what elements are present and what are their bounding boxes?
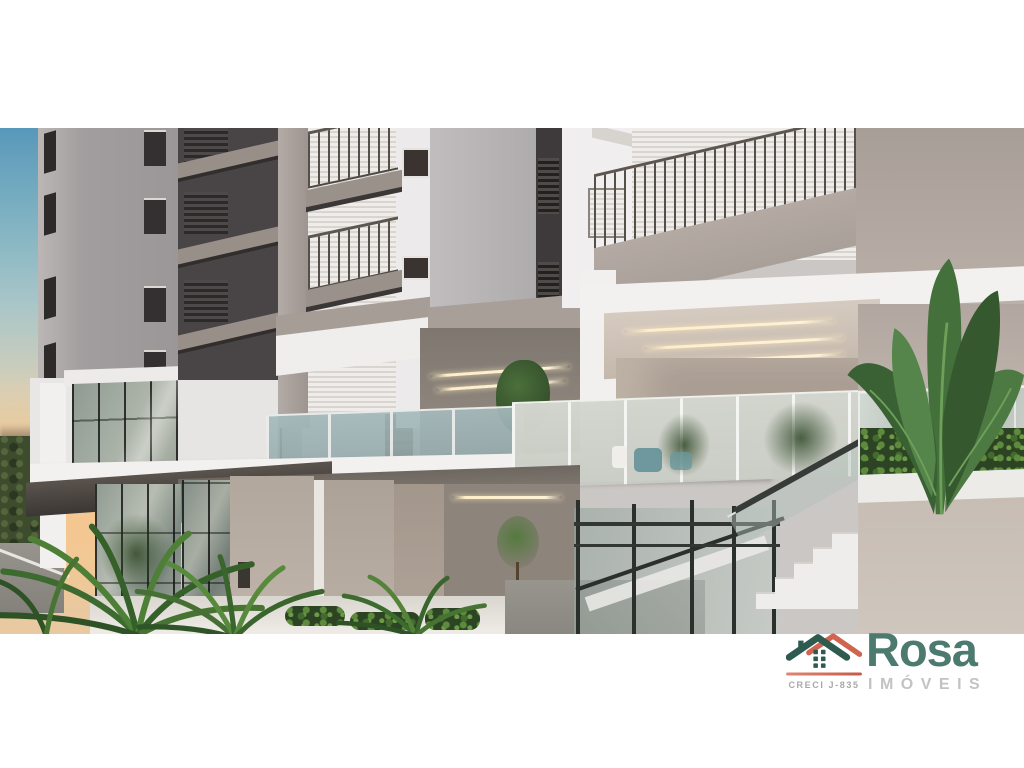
house-logo-icon bbox=[786, 630, 862, 677]
tree-canopy bbox=[497, 516, 539, 568]
louver-window bbox=[538, 158, 559, 214]
led-strip bbox=[644, 337, 844, 350]
terrace-chair bbox=[634, 448, 662, 472]
stair-post bbox=[690, 500, 694, 634]
led-strip bbox=[624, 319, 834, 333]
window-slot bbox=[44, 130, 56, 173]
stair-rail bbox=[574, 544, 780, 547]
entry-ceiling-light bbox=[452, 496, 562, 499]
window-slot bbox=[144, 130, 166, 166]
facade-gray-pier bbox=[430, 128, 536, 308]
balcony-window bbox=[402, 256, 430, 280]
window-slot bbox=[44, 276, 56, 319]
louver-window bbox=[184, 192, 228, 234]
logo-brand-text: Rosa bbox=[866, 626, 977, 673]
logo-license-text: CRECI J-835 bbox=[786, 680, 862, 690]
building-render-photo bbox=[0, 128, 1024, 634]
agency-logo: CRECI J-835 Rosa IMÓVEIS bbox=[786, 630, 1018, 698]
window-slot bbox=[144, 198, 166, 234]
terrace-stool bbox=[612, 446, 627, 468]
logo-subtitle-text: IMÓVEIS bbox=[868, 676, 987, 694]
palm-cluster bbox=[290, 570, 530, 634]
balcony-window bbox=[402, 148, 430, 178]
louver-window bbox=[184, 280, 228, 322]
tower-pier bbox=[278, 128, 310, 428]
stair-post bbox=[576, 500, 580, 634]
real-estate-listing-image: CRECI J-835 Rosa IMÓVEIS bbox=[0, 0, 1024, 768]
window-slot bbox=[44, 192, 56, 235]
banana-plant bbox=[838, 232, 1024, 524]
terrace-chair bbox=[670, 452, 692, 470]
top-white-band bbox=[0, 0, 1024, 128]
window-slot bbox=[144, 286, 166, 322]
